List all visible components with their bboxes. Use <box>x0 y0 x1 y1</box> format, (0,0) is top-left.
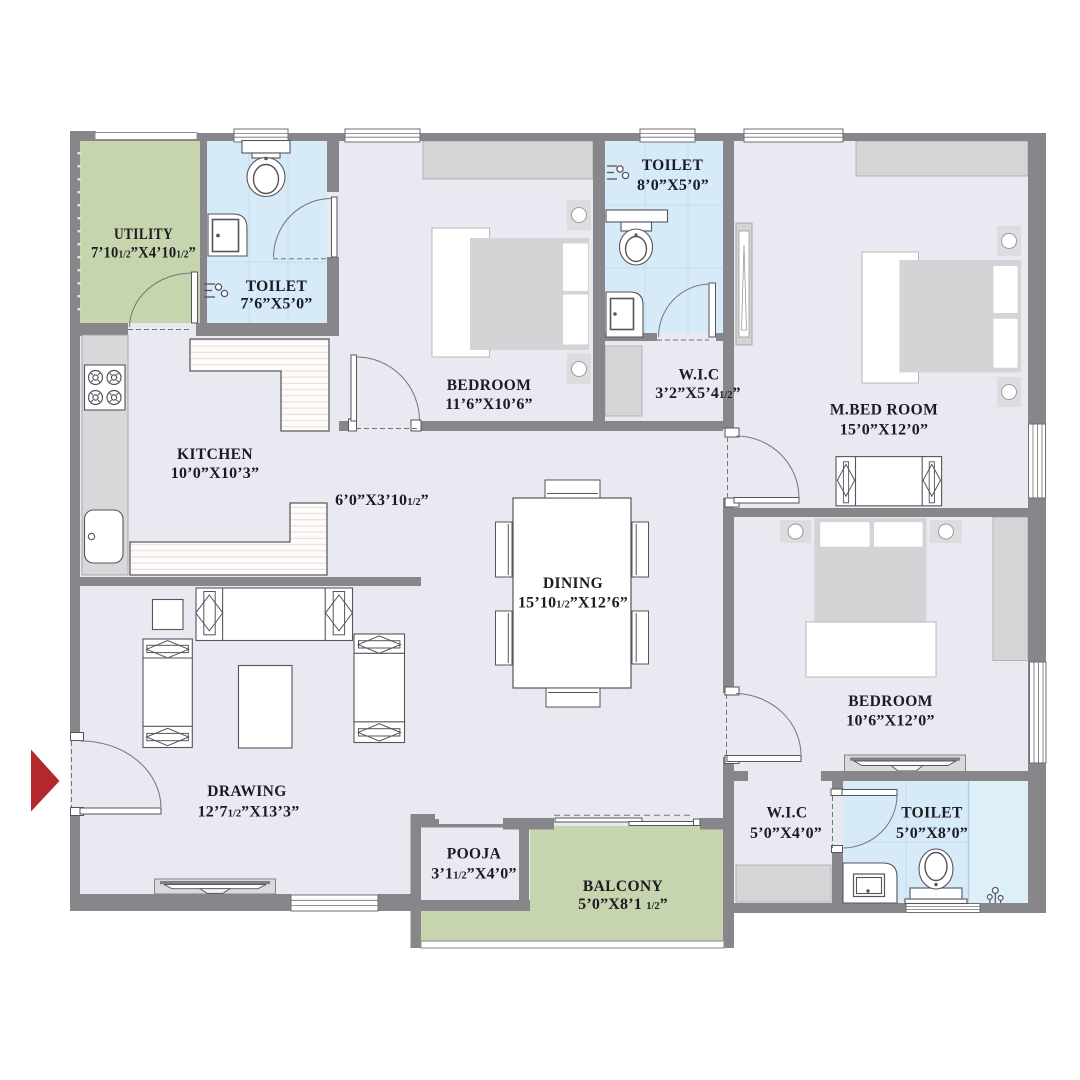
svg-text:10’6”X12’0”: 10’6”X12’0” <box>846 713 934 730</box>
svg-text:POOJA: POOJA <box>447 846 502 863</box>
svg-text:KITCHEN: KITCHEN <box>177 446 253 463</box>
svg-text:W.I.C: W.I.C <box>678 367 719 384</box>
svg-text:TOILET: TOILET <box>642 157 704 174</box>
svg-text:8’0”X5’0”: 8’0”X5’0” <box>637 177 709 194</box>
svg-text:M.BED ROOM: M.BED ROOM <box>830 402 938 419</box>
svg-text:11’6”X10’6”: 11’6”X10’6” <box>445 396 533 413</box>
svg-text:5’0”X8’0”: 5’0”X8’0” <box>896 825 968 842</box>
svg-text:W.I.C: W.I.C <box>766 805 807 822</box>
svg-text:DRAWING: DRAWING <box>207 783 286 800</box>
svg-text:3’11/2”X4’0”: 3’11/2”X4’0” <box>431 866 516 883</box>
svg-text:DINING: DINING <box>543 575 603 592</box>
svg-text:BEDROOM: BEDROOM <box>447 377 532 394</box>
svg-text:UTILITY: UTILITY <box>114 226 173 243</box>
svg-text:TOILET: TOILET <box>246 278 308 295</box>
svg-text:5’0”X4’0”: 5’0”X4’0” <box>750 825 822 842</box>
svg-text:10’0”X10’3”: 10’0”X10’3” <box>171 465 259 482</box>
svg-text:7’6”X5’0”: 7’6”X5’0” <box>240 296 312 313</box>
svg-text:TOILET: TOILET <box>901 805 963 822</box>
svg-text:15’101/2”X12’6”: 15’101/2”X12’6” <box>518 595 628 612</box>
svg-text:BEDROOM: BEDROOM <box>848 693 933 710</box>
svg-text:15’0”X12’0”: 15’0”X12’0” <box>840 422 928 439</box>
svg-text:BALCONY: BALCONY <box>583 878 663 895</box>
svg-text:12’71/2”X13’3”: 12’71/2”X13’3” <box>198 804 300 821</box>
